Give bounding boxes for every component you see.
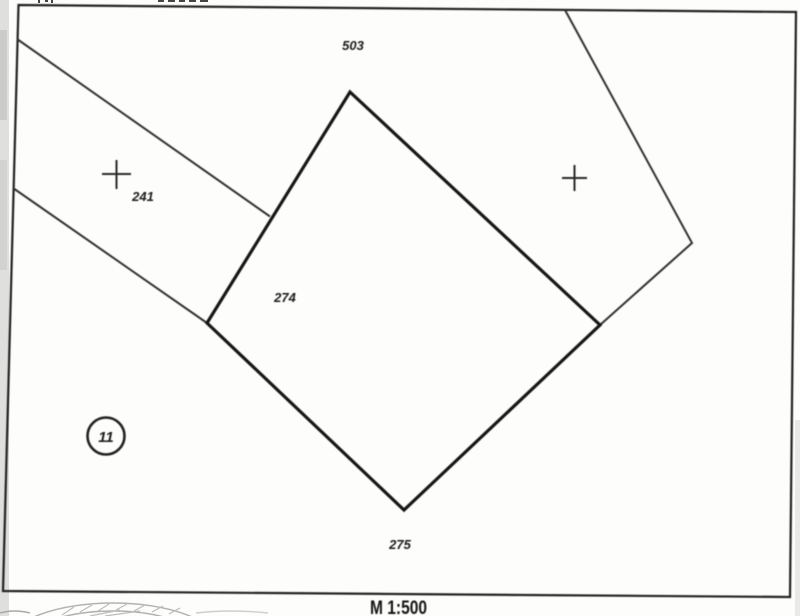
svg-text:274: 274	[273, 290, 296, 305]
svg-text:241: 241	[131, 189, 154, 204]
svg-text:503: 503	[342, 38, 364, 53]
svg-text:M 1:500: M 1:500	[370, 598, 427, 616]
svg-text:275: 275	[388, 537, 411, 552]
svg-text:11: 11	[98, 429, 114, 446]
